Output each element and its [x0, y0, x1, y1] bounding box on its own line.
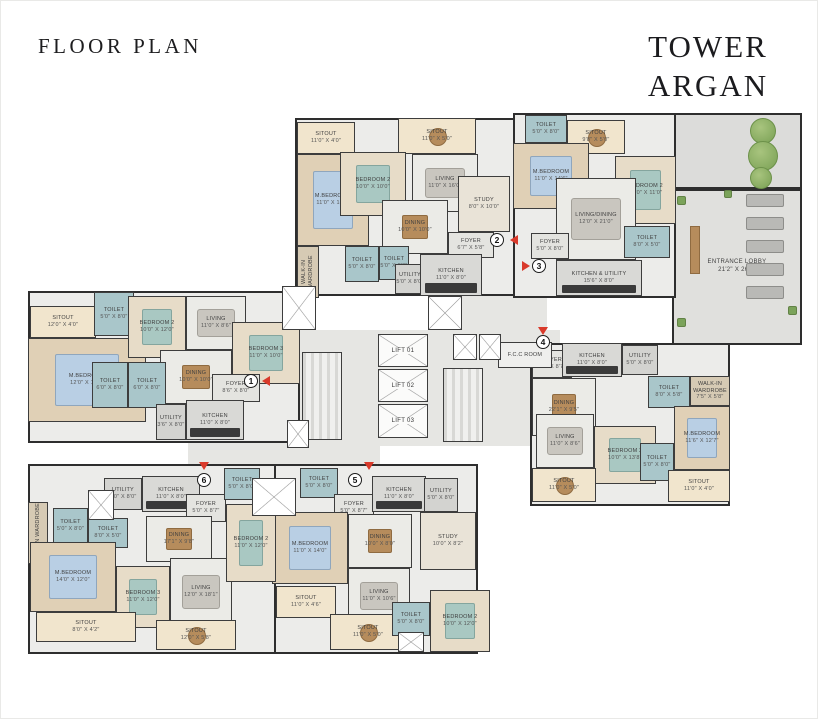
room-6-sitout: SITOUT8'0" X 4'2": [36, 612, 136, 642]
unit-marker-6: 6: [197, 473, 211, 487]
tower-name: TOWER ARGAN: [638, 28, 778, 106]
bench: [746, 240, 784, 253]
room-1-kitchen: KITCHEN11'0" X 8'0": [186, 400, 244, 440]
room-label: KITCHEN11'0" X 8'0": [577, 353, 607, 367]
room-label: BEDROOM 210'0" X 10'0": [356, 177, 391, 191]
counter-furniture: [190, 428, 239, 437]
room-label: LIVING/DINING12'0" X 21'0": [575, 212, 616, 226]
room-4-m-bedroom: M.BEDROOM11'6" X 12'7": [674, 406, 730, 470]
room-4-walk-in-wardrobe: WALK-IN WARDROBE7'5" X 5'8": [690, 376, 730, 406]
room-label: UTILITY5'0" X 8'0": [626, 353, 653, 367]
room-1-toilet: TOILET6'0" X 8'0": [92, 362, 128, 408]
plant: [677, 318, 686, 327]
room-label: DINING10'0" X 10'0": [179, 370, 213, 384]
room-label: LIVING12'0" X 18'1": [184, 585, 218, 599]
room-6-toilet: TOILET5'0" X 8'0": [53, 508, 88, 544]
room-label: BEDROOM 210'0" X 12'0": [443, 614, 478, 628]
entry-arrow-2: [510, 235, 518, 245]
room-3-toilet: TOILET8'0" X 5'0": [624, 226, 670, 258]
room-5-bedroom-2: BEDROOM 210'0" X 12'0": [430, 590, 490, 652]
room-6-sitout: SITOUT12'0" X 5'8": [156, 620, 236, 650]
room-1-bedroom-2: BEDROOM 210'0" X 12'0": [128, 296, 186, 358]
room-label: BEDROOM 311'0" X 10'0": [249, 346, 284, 360]
counter-furniture: [562, 285, 636, 293]
room-label: KITCHEN11'0" X 8'0": [200, 413, 230, 427]
room-label: LIVING11'0" X 10'6": [362, 589, 395, 603]
room-label: BEDROOM 210'0" X 13'8": [608, 448, 643, 462]
room-label: SITOUT11'0" X 5'0": [353, 625, 383, 639]
room-label: LIVING11'0" X 8'6": [550, 434, 580, 448]
room-label: SITOUT11'0" X 4'0": [311, 131, 341, 145]
room-label: SITOUT11'0" X 4'6": [291, 595, 321, 609]
entry-arrow-6: [199, 462, 209, 470]
lift-label: LIFT 01: [390, 348, 417, 354]
room-label: KITCHEN11'0" X 8'0": [384, 487, 414, 501]
room-4-utility: UTILITY5'0" X 8'0": [622, 345, 658, 375]
room-label: STUDY8'0" X 10'0": [469, 197, 499, 211]
room-5-sitout: SITOUT11'0" X 4'6": [276, 586, 336, 618]
room-label: LIVING11'0" X 8'6": [201, 316, 231, 330]
room-label: SITOUT8'0" X 4'2": [72, 620, 99, 634]
room-2-sitout: SITOUT11'0" X 5'0": [398, 118, 476, 154]
counter-furniture: [425, 283, 478, 293]
lift-1: LIFT 01: [378, 334, 428, 367]
room-label: TOILET5'0" X 8'0": [305, 476, 332, 490]
tower-name-line1: TOWER: [638, 28, 778, 67]
room-label: TOILET6'0" X 8'0": [133, 378, 160, 392]
room-label: BEDROOM 311'0" X 12'0": [126, 590, 161, 604]
service-shaft: [287, 420, 309, 448]
room-label: BEDROOM 210'0" X 12'0": [140, 320, 175, 334]
room-4-sitout: SITOUT11'0" X 5'0": [532, 468, 596, 502]
entry-arrow-5: [364, 462, 374, 470]
room-6-living: LIVING12'0" X 18'1": [170, 558, 232, 626]
unit-marker-3: 3: [532, 259, 546, 273]
room-label: STUDY10'0" X 8'2": [433, 534, 463, 548]
room-label: SITOUT9'8" X 5'0": [582, 130, 609, 144]
bench: [746, 286, 784, 299]
service-shaft: [252, 478, 296, 516]
service-shaft: [453, 334, 477, 360]
bench: [746, 217, 784, 230]
service-shaft: [398, 632, 424, 652]
service-shaft: [479, 334, 501, 360]
room-3-toilet: TOILET5'0" X 8'0": [525, 115, 567, 143]
room-5-study: STUDY10'0" X 8'2": [420, 512, 476, 570]
unit-marker-4: 4: [536, 335, 550, 349]
room-label: M.BEDROOM14'0" X 12'0": [55, 570, 91, 584]
room-5-dining: DINING10'0" X 8'0": [348, 514, 412, 568]
bench: [746, 194, 784, 207]
entry-arrow-4: [538, 327, 548, 335]
entry-arrow-3: [522, 261, 530, 271]
room-2-kitchen: KITCHEN11'0" X 8'0": [420, 254, 482, 296]
room-label: TOILET8'0" X 5'0": [633, 235, 660, 249]
room-label: FOYER5'0" X 8'7": [192, 501, 219, 515]
room-label: FOYER5'0" X 8'0": [536, 239, 563, 253]
room-2-sitout: SITOUT11'0" X 4'0": [297, 122, 355, 154]
counter-furniture: [376, 501, 422, 509]
room-label: KITCHEN & UTILITY15'6" X 8'0": [572, 271, 627, 285]
room-label: TOILET5'0" X 8'0": [57, 519, 84, 533]
room-2-study: STUDY8'0" X 10'0": [458, 176, 510, 232]
room-label: TOILET5'0" X 8'0": [100, 307, 127, 321]
room-label: DINING17'1" X 9'8": [164, 532, 194, 546]
entrance-deck: [672, 113, 802, 189]
room-label: SITOUT11'0" X 5'0": [549, 478, 579, 492]
service-shaft: [88, 490, 114, 520]
room-label: LIVING11'0" X 16'0": [428, 176, 461, 190]
room-label: DINING10'0" X 8'0": [365, 534, 395, 548]
room-1-sitout: SITOUT12'0" X 4'0": [30, 306, 96, 338]
room-label: UTILITY3'6" X 8'0": [157, 415, 184, 429]
lift-label: LIFT 02: [390, 383, 417, 389]
room-5-toilet: TOILET5'0" X 8'0": [300, 468, 338, 498]
lift-2: LIFT 02: [378, 369, 428, 402]
tower-name-line2: ARGAN: [638, 67, 778, 106]
entry-arrow-1: [262, 376, 270, 386]
room-4-toilet: TOILET8'0" X 5'8": [648, 376, 690, 408]
room-label: UTILITY5'0" X 8'0": [427, 488, 454, 502]
counter-furniture: [566, 366, 617, 374]
room-label: M.BEDROOM11'6" X 12'7": [684, 431, 720, 445]
room-label: FOYER6'7" X 5'8": [457, 238, 484, 252]
room-label: WALK-IN WARDROBE7'5" X 5'8": [691, 381, 729, 402]
room-label: TOILET6'0" X 8'0": [96, 378, 123, 392]
service-shaft: [282, 286, 316, 330]
room-label: TOILET8'0" X 5'0": [94, 526, 121, 540]
room-label: SITOUT11'0" X 4'0": [684, 479, 714, 493]
room-6-dining: DINING17'1" X 9'8": [146, 516, 212, 562]
unit-marker-5: 5: [348, 473, 362, 487]
plant: [724, 190, 732, 198]
lift-label: LIFT 03: [390, 418, 417, 424]
room-label: KITCHEN11'0" X 8'0": [436, 268, 466, 282]
room-label: TOILET5'0" X 8'0": [348, 257, 375, 271]
staircase: [443, 368, 483, 442]
room-5-toilet: TOILET5'0" X 8'0": [392, 602, 430, 636]
unit-marker-2: 2: [490, 233, 504, 247]
room-label: SITOUT12'0" X 4'0": [48, 315, 78, 329]
room-4-sitout: SITOUT11'0" X 4'0": [668, 470, 730, 502]
room-5-m-bedroom: M.BEDROOM11'0" X 14'0": [272, 512, 348, 584]
room-label: SITOUT12'0" X 5'8": [181, 628, 211, 642]
room-label: DINING22'1" X 9'5": [549, 400, 579, 414]
room-1-toilet: TOILET6'0" X 8'0": [128, 362, 166, 408]
service-shaft: [428, 296, 462, 330]
room-4-kitchen: KITCHEN11'0" X 8'0": [562, 343, 622, 377]
room-5-utility: UTILITY5'0" X 8'0": [424, 478, 458, 512]
bench: [746, 263, 784, 276]
room-label: M.BEDROOM11'0" X 14'0": [292, 541, 328, 555]
room-3-foyer: FOYER5'0" X 8'0": [531, 233, 569, 259]
room-label: SITOUT11'0" X 5'0": [422, 129, 452, 143]
room-label: BEDROOM 211'0" X 12'0": [234, 536, 269, 550]
plant: [677, 196, 686, 205]
room-1-utility: UTILITY3'6" X 8'0": [156, 404, 186, 440]
room-label: DINING10'0" X 10'0": [398, 220, 432, 234]
lift-3: LIFT 03: [378, 404, 428, 438]
room-label: KITCHEN11'0" X 8'0": [156, 487, 186, 501]
unit-marker-1: 1: [244, 374, 258, 388]
room-2-toilet: TOILET5'0" X 8'0": [345, 246, 379, 282]
room-3-kitchen-utility: KITCHEN & UTILITY15'6" X 8'0": [556, 260, 642, 296]
reception-desk: [690, 226, 700, 274]
room-label: TOILET5'0" X 8'0": [532, 122, 559, 136]
tree: [750, 167, 772, 189]
room-label: TOILET5'0" X 8'0": [643, 455, 670, 469]
floor-plan-page: FLOOR PLAN TOWER ARGAN ENTRANCE LOBBY21'…: [0, 0, 818, 719]
room-label: TOILET5'0" X 8'0": [397, 612, 424, 626]
room-4-living: LIVING11'0" X 8'6": [536, 414, 594, 468]
page-title: FLOOR PLAN: [38, 34, 202, 59]
room-label: TOILET8'0" X 5'8": [655, 385, 682, 399]
plant: [788, 306, 797, 315]
room-5-kitchen: KITCHEN11'0" X 8'0": [372, 476, 426, 512]
room-6-m-bedroom: M.BEDROOM14'0" X 12'0": [30, 542, 116, 612]
